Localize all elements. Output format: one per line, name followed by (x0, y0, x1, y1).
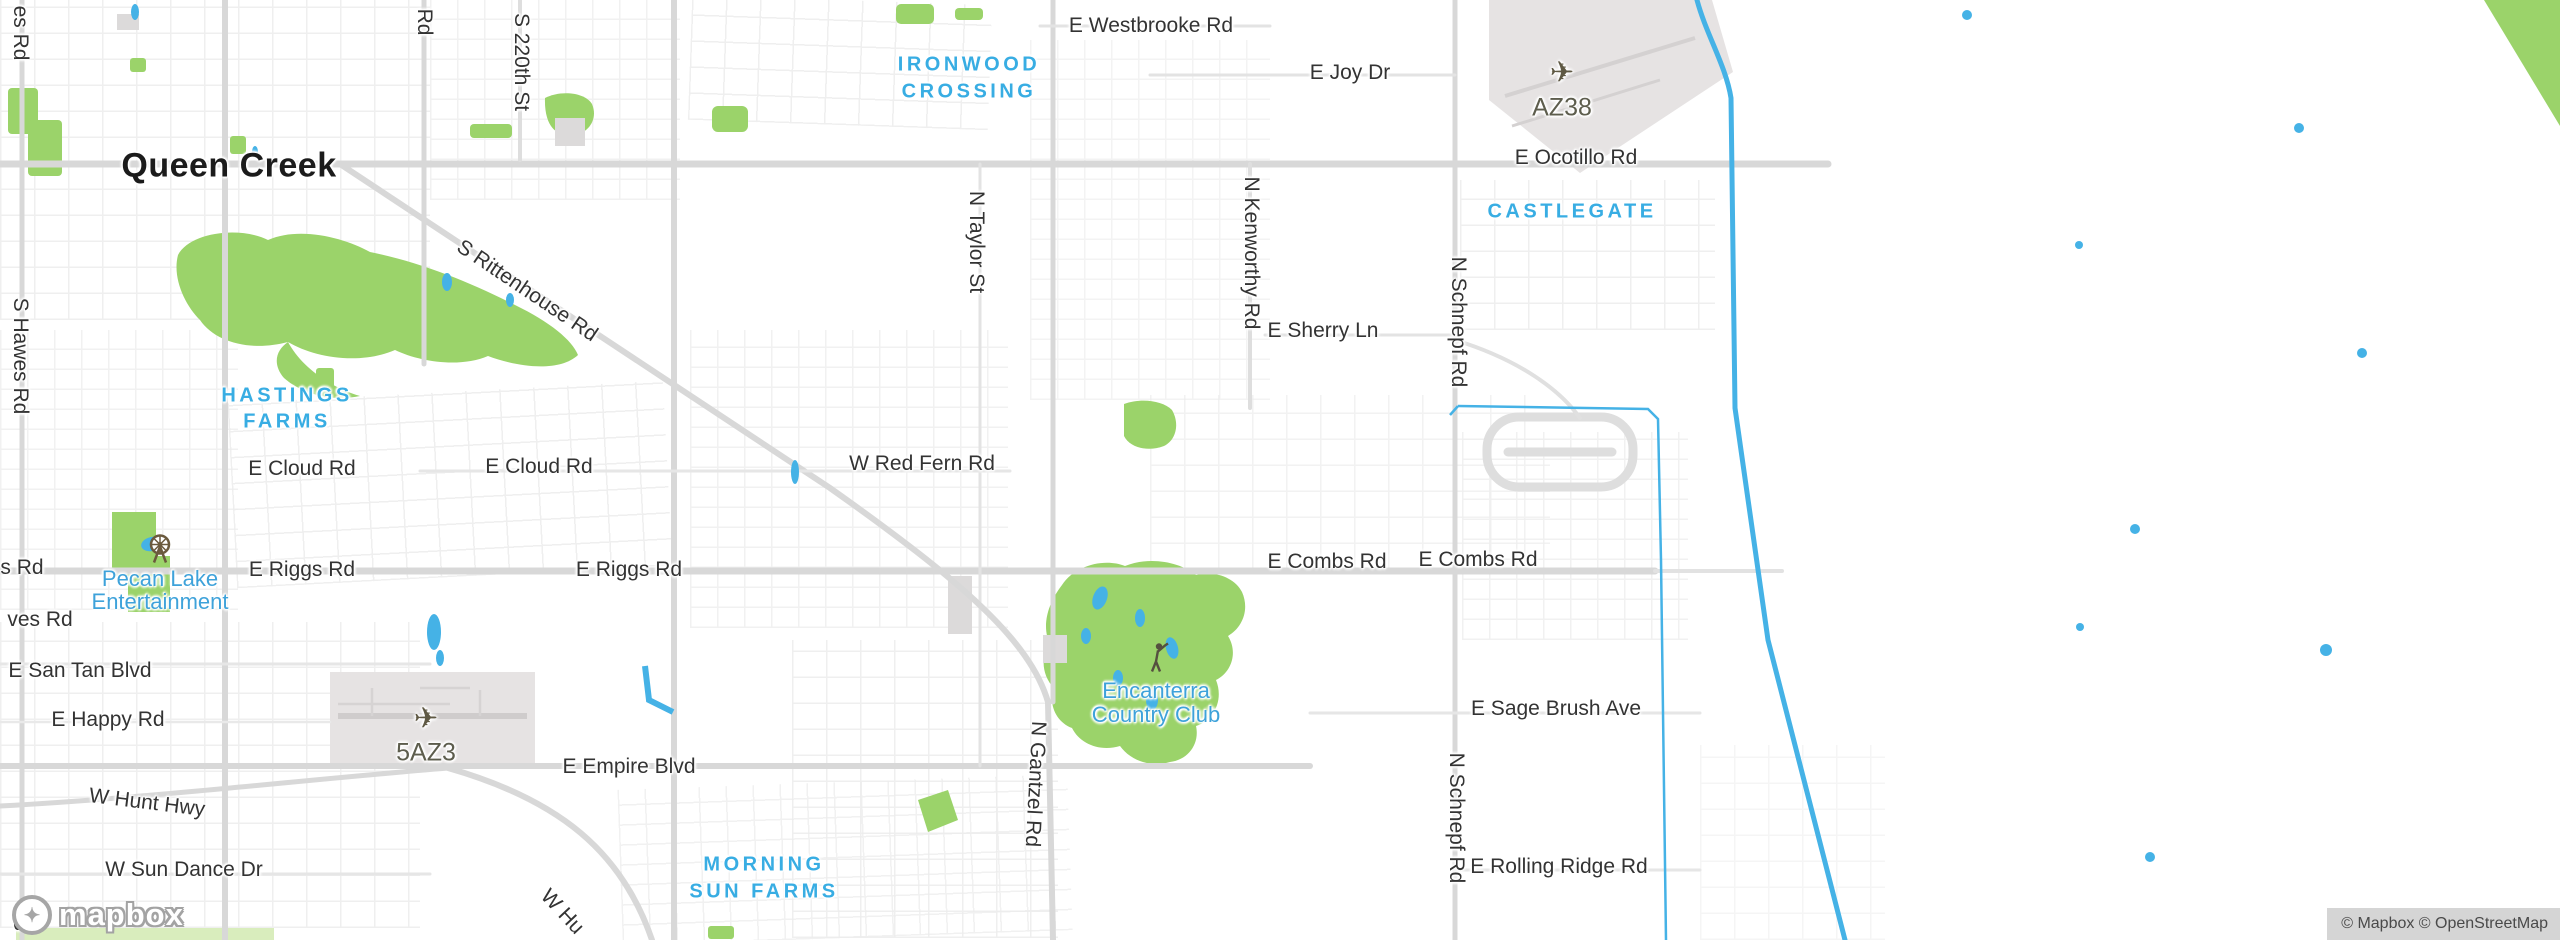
road-label-schnepf-south: N Schnepf Rd (1444, 753, 1468, 884)
road-label-combs-e: E Combs Rd (1418, 548, 1537, 572)
airport-label-az38: AZ38 (1532, 94, 1592, 123)
city-label: Queen Creek (121, 147, 336, 186)
road-label-sun-dance: W Sun Dance Dr (105, 858, 263, 882)
road-label-hawes: S Hawes Rd (8, 298, 32, 415)
road-label-empire: E Empire Blvd (562, 755, 695, 779)
road-label-san-tan: E San Tan Blvd (8, 659, 151, 683)
road-label-cloud-w: E Cloud Rd (248, 457, 355, 481)
poi-label-encanterra: Encanterra (1102, 678, 1210, 704)
mapbox-wordmark: mapbox (59, 897, 184, 933)
airport-polygons (330, 0, 1733, 769)
mapbox-logo[interactable]: ✦ mapbox (12, 895, 184, 935)
road-label-happy: E Happy Rd (51, 708, 164, 732)
neighborhood-label-morning-sun: SUN FARMS (689, 881, 838, 904)
road-label-rolling-ridge: E Rolling Ridge Rd (1470, 855, 1647, 879)
neighborhood-label-castlegate: CASTLEGATE (1487, 201, 1656, 224)
airplane-icon: ✈ (414, 701, 438, 735)
road-label-red-fern: W Red Fern Rd (849, 452, 995, 476)
road-label-taylor: N Taylor St (964, 191, 988, 293)
road-label-220th: S 220th St (509, 13, 533, 111)
neighborhood-label-hastings: FARMS (243, 411, 331, 434)
poi-label-pecan-lake: Entertainment (92, 589, 229, 615)
road-label-riggs-left-cut: s Rd (0, 556, 43, 580)
road-label-riggs-w: E Riggs Rd (249, 558, 355, 582)
road-label-cloud-e: E Cloud Rd (485, 455, 592, 479)
neighborhood-label-hastings: HASTINGS (221, 385, 352, 408)
mapbox-pin-icon: ✦ (12, 895, 52, 935)
park-polygons (8, 0, 2560, 939)
neighborhood-label-ironwood: CROSSING (902, 81, 1037, 104)
road-label-kenworthy: N Kenworthy Rd (1239, 177, 1263, 330)
road-label-ocotillo: E Ocotillo Rd (1515, 146, 1638, 170)
canal (1697, 0, 1845, 940)
road-label-combs-w: E Combs Rd (1267, 550, 1386, 574)
road-label-rd-cut: Rd (412, 9, 436, 36)
road-label-joy: E Joy Dr (1310, 61, 1391, 85)
airplane-icon: ✈ (1550, 55, 1574, 89)
poi-label-encanterra: Country Club (1092, 702, 1220, 728)
road-label-schnepf-north: N Schnepf Rd (1446, 257, 1470, 388)
road-label-sage-brush: E Sage Brush Ave (1471, 697, 1641, 721)
airport-label-5az3: 5AZ3 (396, 739, 456, 768)
neighborhood-label-ironwood: IRONWOOD (898, 54, 1040, 77)
road-label-riggs-e: E Riggs Rd (576, 558, 682, 582)
neighborhood-label-morning-sun: MORNING (703, 854, 824, 877)
road-label-westbrooke: E Westbrooke Rd (1069, 14, 1233, 38)
road-label-hawes-left-cut: ves Rd (7, 608, 72, 632)
map-viewport[interactable]: Queen Creek E Westbrooke Rd E Joy Dr E O… (0, 0, 2560, 940)
map-attribution[interactable]: © Mapbox © OpenStreetMap (2327, 908, 2560, 940)
road-label-sherry: E Sherry Ln (1268, 319, 1379, 343)
golfer-icon (1146, 642, 1170, 679)
ferris-wheel-icon (146, 533, 174, 570)
map-canvas[interactable] (0, 0, 2560, 940)
road-label-hawes-top-cut: es Rd (8, 6, 32, 61)
